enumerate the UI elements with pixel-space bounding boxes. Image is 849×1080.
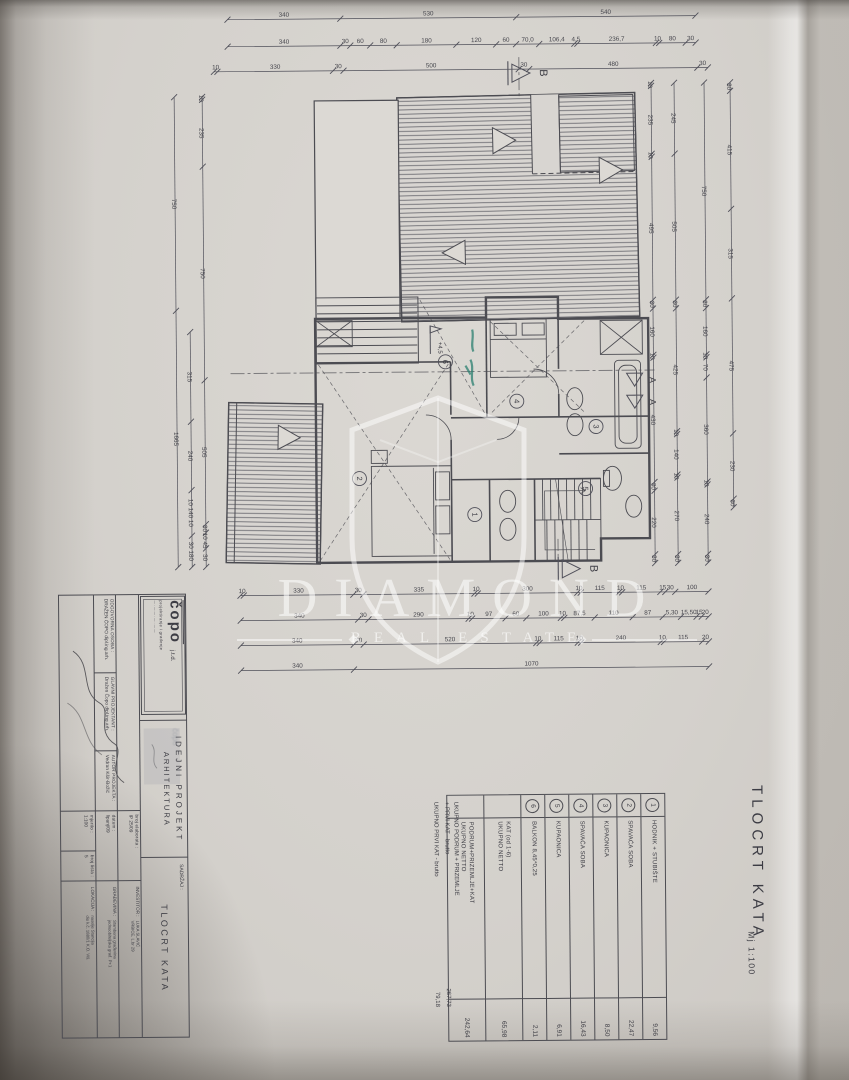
dimension-label: 87: [644, 610, 652, 617]
dimension-label: 750: [199, 268, 206, 279]
dimension-label: 115: [678, 634, 689, 641]
dimension-label: 60: [357, 38, 365, 45]
dimension-label: 30: [355, 637, 363, 644]
room-number-circle: 1: [646, 798, 660, 812]
dimension-chain: 3401070: [238, 659, 712, 674]
dimension-label: 430: [649, 415, 656, 426]
dimension-chain: 102357505053010 4530: [197, 94, 209, 570]
dimension-label: 235: [646, 115, 653, 126]
dimension-label: 60: [503, 37, 511, 44]
dimension-label: 115: [554, 635, 565, 642]
dimension-label: 500: [426, 62, 437, 69]
dimension-label: 10 45: [201, 533, 208, 549]
ghost-stamp: čopo: [171, 728, 181, 788]
room-legend-table: 1HODNIK + STUBIŠTE9,562SPAVAĆA SOBA22,47…: [446, 793, 667, 1042]
bathroom-fixtures: [498, 360, 642, 540]
section-marker-a: A: [627, 373, 658, 386]
company-logo-block: čopoj.t.d. projektiranje i građenje — · …: [153, 600, 185, 712]
dimension-label: 220: [650, 517, 657, 528]
room-name: HODNIK + STUBIŠTE: [641, 816, 666, 998]
responsible-person-cell: ODGOVORNA OSOBA : DRAŽEN ČOPO dipl.ing.a…: [102, 599, 115, 671]
investor-cell: INVESTITOR : LUKA SLAVIĆ VRBICE, L.br 29: [129, 886, 141, 1034]
dimension-chain: 3403052010115102401011520: [238, 634, 712, 649]
legend-row: 4SPAVAĆA SOBA16,43: [569, 795, 595, 1040]
dimension-label: 30: [699, 60, 707, 67]
dimension-label: 70,0: [521, 37, 534, 44]
room-area: 8,50: [603, 998, 610, 1039]
dimension-label: 100: [538, 610, 549, 617]
dimension-label: 80: [380, 38, 388, 45]
dimension-label: 15: [659, 584, 667, 591]
drawing-sheet: 3405305403403060801801206070,0106,44,523…: [0, 0, 849, 1080]
chief-designer-cell: GLAVNI PROJEKTANT : Dražen Čopo dipl.ing…: [102, 677, 115, 749]
dimension-label: 60: [512, 611, 520, 618]
dimension-label: 330: [270, 64, 281, 71]
room-number-4: 4: [510, 394, 524, 408]
legend-row: 3KUPAONICA8,50: [593, 794, 619, 1039]
dimension-label: 30: [360, 612, 368, 619]
dimension-label: 495: [647, 223, 654, 234]
svg-text:B: B: [537, 69, 549, 76]
room-name: SPAVAĆA SOBA: [569, 817, 594, 999]
dimension-chain: 10330305003048030: [211, 60, 711, 75]
dimension-label: 30 180: [187, 542, 194, 562]
room-name: KUPAONICA: [545, 817, 570, 999]
dimension-label: 340: [292, 638, 303, 645]
dimension-label: 240: [616, 635, 627, 642]
dimension-label: 20: [702, 634, 710, 641]
room-area: 6,91: [555, 999, 562, 1040]
room-number-3: 3: [589, 419, 603, 433]
svg-text:A: A: [648, 377, 658, 383]
dimension-label: 340: [292, 663, 303, 670]
dimension-label: 70: [701, 364, 708, 372]
location-cell: LOKACIJA : naselje Stancija dio k.č. 188…: [84, 887, 96, 1035]
dimension-label: 10 140 10: [187, 499, 194, 528]
dimension-label: 180: [421, 37, 432, 44]
dimension-label: 245: [669, 113, 676, 124]
dimension-label: 505: [670, 221, 677, 232]
legend-row: 5KUPAONICA6,91: [545, 795, 571, 1040]
room-name: KUPAONICA: [593, 816, 618, 998]
dimension-label: 30: [687, 35, 695, 42]
dimension-label: 340: [294, 613, 305, 620]
logo-tagline: projektiranje i građenje: [159, 600, 165, 712]
dimension-label: 80: [669, 35, 677, 42]
dimension-label: 235: [197, 128, 204, 139]
dimension-label: 30: [355, 587, 363, 594]
dimension-label: 340: [279, 12, 290, 19]
highlighter-marks: [465, 330, 473, 386]
room-name: BALKON 8,45*0,25: [521, 817, 546, 999]
room-number-circle: 3: [598, 798, 612, 812]
room-area: 16,43: [579, 999, 586, 1040]
dimension-label: 30: [201, 554, 208, 562]
dimension-chain: 31524010 140 1030 180: [185, 329, 195, 570]
dimension-label: 290: [413, 612, 424, 619]
dimension-label: 505: [200, 447, 207, 458]
dimension-label: 87,5: [573, 610, 586, 617]
dimension-label: 110: [609, 610, 620, 617]
room-area: 65,98: [501, 999, 508, 1040]
bed-bedroom2: [371, 450, 452, 557]
room-number-2: 2: [352, 472, 366, 486]
dimension-chain: 3041531547523030: [725, 79, 737, 510]
dimension-label: 300: [522, 586, 533, 593]
dimension-label: 106,4: [549, 36, 565, 43]
door-arcs: [426, 369, 560, 440]
dimension-label: 160: [701, 326, 708, 337]
dimension-label: 330: [293, 588, 304, 595]
dimension-chain: 24550530425101401027030: [669, 80, 681, 566]
dimension-label: 20: [702, 609, 710, 616]
room-number-circle: 2: [622, 798, 636, 812]
dimension-label: 480: [608, 61, 619, 68]
dimension-label: 240: [703, 514, 710, 525]
date-cell: datum : lipanj/09: [104, 815, 117, 873]
sheet-number-cell: broj lista : 5: [82, 855, 95, 889]
elaborate-number-cell: broj elaborata : IP 25/09: [127, 814, 140, 872]
room-number-5: 5: [578, 482, 592, 496]
dimension-label: 340: [279, 39, 290, 46]
dimension-label: 120: [471, 37, 482, 44]
room-area: 9,56: [651, 998, 658, 1039]
svg-text:3: 3: [591, 424, 600, 428]
sheet-content-cell: SADRŽAJ : TLOCRT KATA: [159, 864, 185, 1032]
svg-text:4: 4: [512, 399, 521, 403]
dimension-label: 236,7: [609, 36, 625, 43]
room-number-circle: 5: [550, 799, 564, 813]
dimension-label: 750: [170, 199, 177, 210]
room-area: 22,47: [627, 998, 634, 1039]
dimension-chain: 7501665: [169, 94, 181, 570]
dimension-label: 315: [186, 372, 193, 383]
room-number-circle: 6: [526, 799, 540, 813]
legend-row: KAT (od 1-6)UKUPNO NETTO65,98: [484, 795, 523, 1040]
room-area: 242,64: [464, 1000, 471, 1041]
dimension-label: 475: [727, 361, 734, 372]
dimension-label: 240: [186, 451, 193, 462]
dimension-label: 30: [335, 63, 343, 70]
building-cell: GRAĐEVINA : Stambena građevina jednoobit…: [106, 887, 118, 1035]
svg-text:1: 1: [470, 512, 479, 516]
section-marker-a: A: [627, 395, 658, 408]
svg-text:A: A: [648, 399, 658, 405]
legend-row: 2SPAVAĆA SOBA22,47: [617, 794, 643, 1039]
logo-tagline2: — · — — · — · — —: [153, 600, 158, 712]
dimension-label: 160: [648, 326, 655, 337]
total-prvi-kat-line: UKUPNO PRVI KAT - brutto79,18: [430, 802, 441, 1007]
svg-text:5: 5: [581, 486, 590, 490]
dimension-label: 140: [672, 449, 679, 460]
dimension-label: 315: [726, 248, 733, 259]
dimension-chain: 340302901097601001087,5110875,3015,50152…: [238, 609, 712, 624]
svg-text:2: 2: [355, 476, 364, 480]
dimension-label: 750: [700, 186, 707, 197]
svg-text:6: 6: [441, 360, 450, 364]
void-area: [314, 100, 400, 319]
dimension-label: 115: [595, 585, 606, 592]
dimension-label: 270: [673, 511, 680, 522]
dimension-label: 530: [423, 10, 434, 17]
dimension-chain: 10330303351030010115101151530100: [237, 584, 711, 599]
roof-hatch-topright: [397, 92, 640, 321]
dimension-label: 30: [667, 584, 675, 591]
dimension-label: 1070: [524, 661, 539, 668]
dimension-label: 230: [728, 461, 735, 472]
room-name: SPAVAĆA SOBA: [617, 816, 642, 998]
scale-cell: mjerilo : 1:100: [82, 815, 95, 849]
dimension-label: 1665: [172, 432, 179, 447]
dimension-label: 30: [520, 62, 528, 69]
room-number-1: 1: [468, 507, 482, 521]
company-logo: čopo: [168, 600, 184, 644]
sheet-scale: Mj 1:100: [746, 931, 757, 1021]
legend-row: 1HODNIK + STUBIŠTE9,56: [641, 794, 666, 1039]
dimension-label: 415: [726, 145, 733, 156]
section-marker-b: B: [508, 61, 549, 85]
dimension-label: 335: [414, 587, 425, 594]
dimension-chain: 340530540: [224, 8, 698, 23]
legend-row: 6BALKON 8,45*0,252,11: [521, 795, 547, 1040]
dimension-label: 100: [687, 584, 698, 591]
level-mark: +4,5: [430, 326, 442, 355]
svg-text:B: B: [587, 565, 599, 572]
dimension-chain: 7503016010703601024030: [699, 80, 711, 566]
floor-plan-drawing: 3405305403403060801801206070,0106,44,523…: [0, 0, 849, 1080]
svg-text:+4,5: +4,5: [436, 342, 442, 355]
dimension-label: 97: [485, 611, 493, 618]
dimension-label: 540: [600, 9, 611, 16]
stairs: [534, 478, 601, 561]
dimension-label: 425: [671, 365, 678, 376]
dimension-label: 360: [702, 424, 709, 435]
dimension-label: 5,30: [666, 609, 679, 616]
total-podrum-line: UKUPNO PODRUM + PRIZEMLJE + PRVI KAT - b…: [441, 802, 461, 1007]
dimension-label: 30: [342, 38, 350, 45]
room-area: 2,11: [531, 999, 538, 1040]
dimension-label: 115: [636, 585, 647, 592]
scanned-floor-plan-document: 3405305403403060801801206070,0106,44,523…: [0, 0, 849, 1080]
dimension-label: 520: [445, 636, 456, 643]
dimension-chain: 3403060801801206070,0106,44,5236,7108030: [225, 35, 699, 50]
roof-hatch-left: [226, 403, 323, 564]
room-number-circle: 4: [574, 799, 588, 813]
room-name: KAT (od 1-6)UKUPNO NETTO: [484, 817, 522, 999]
